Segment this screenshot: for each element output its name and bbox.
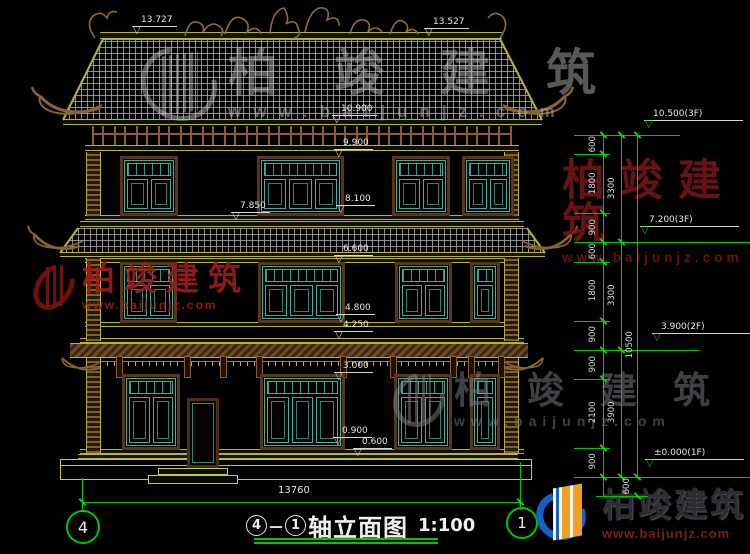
elevation-mark: 9.900▽ xyxy=(334,139,373,158)
elevation-triangle-icon: ▽ xyxy=(425,29,469,37)
dimension-text: 1800 xyxy=(589,277,598,303)
elevation-mark: ±0.000(1F)▽ xyxy=(645,449,744,468)
dimension-text: 10500 xyxy=(626,332,635,358)
elevation-triangle-icon: ▽ xyxy=(653,334,750,342)
dimension-line xyxy=(82,502,520,503)
dimension-line xyxy=(574,242,750,243)
dimension-line xyxy=(621,135,622,477)
dimension-text: 3900 xyxy=(608,399,617,425)
overall-width-dim: 13760 xyxy=(278,486,310,496)
title-axis-end-bubble: 1 xyxy=(285,515,306,536)
pent-roof-corner-right xyxy=(522,226,577,249)
dimension-text: 900 xyxy=(589,321,598,347)
elevation-mark: 4.250▽ xyxy=(334,321,373,340)
elevation-mark: 3.000▽ xyxy=(334,362,373,381)
main-roof-corner-left xyxy=(32,87,102,114)
dimension-text: 3300 xyxy=(608,282,617,308)
dimension-line xyxy=(574,477,750,478)
elevation-value: ±0.000(1F) xyxy=(645,449,744,460)
dimension-line xyxy=(82,478,83,510)
elevation-mark: 0.600▽ xyxy=(353,438,392,457)
axis-bubble-4: 4 xyxy=(66,510,100,544)
title-scale: 1:100 xyxy=(418,515,475,536)
elevation-mark: 7.200(3F)▽ xyxy=(640,216,739,235)
elevation-triangle-icon: ▽ xyxy=(645,121,743,129)
pent-roof-corner-left xyxy=(28,226,83,249)
elevation-mark: 13.727▽ xyxy=(132,16,177,35)
elevation-mark: 8.100▽ xyxy=(336,195,375,214)
elevation-mark: 10.900▽ xyxy=(332,105,377,124)
dimension-text: 600 xyxy=(589,131,598,157)
dimension-text: 900 xyxy=(589,214,598,240)
elevation-triangle-icon: ▽ xyxy=(646,460,744,468)
elevation-triangle-icon: ▽ xyxy=(232,213,270,221)
elevation-triangle-icon: ▽ xyxy=(641,227,739,235)
elevation-drawing-canvas: 13.727▽13.527▽10.900▽9.900▽8.100▽7.850▽6… xyxy=(0,0,750,554)
baijun-logo-color xyxy=(536,484,598,548)
dimension-text: 3300 xyxy=(608,175,617,201)
elevation-value: 10.500(3F) xyxy=(644,110,743,121)
main-roof-outline xyxy=(63,39,542,120)
axis-bubble-1-label: 1 xyxy=(517,514,527,532)
elevation-triangle-icon: ▽ xyxy=(335,332,373,340)
dimension-line xyxy=(637,135,638,477)
dimension-text: 900 xyxy=(589,351,598,377)
axis-bubble-4-label: 4 xyxy=(78,518,88,537)
dimension-line xyxy=(603,135,604,496)
elevation-triangle-icon: ▽ xyxy=(335,150,373,158)
dimension-text: 600 xyxy=(623,473,632,499)
elevation-mark: 7.850▽ xyxy=(231,202,270,221)
elevation-triangle-icon: ▽ xyxy=(335,373,373,381)
elevation-mark: 13.527▽ xyxy=(424,18,469,37)
porch-corner-left xyxy=(62,358,100,370)
elevation-mark: 6.600▽ xyxy=(334,245,373,264)
dimension-text: 13760 xyxy=(278,486,310,496)
elevation-triangle-icon: ▽ xyxy=(333,116,377,124)
pent-roof-outline xyxy=(60,228,545,253)
axis-bubble-1: 1 xyxy=(506,507,538,539)
elevation-value: 3.900(2F) xyxy=(652,323,750,334)
elevation-mark: 10.500(3F)▽ xyxy=(644,110,743,129)
dimension-text: 2100 xyxy=(589,399,598,425)
elevation-triangle-icon: ▽ xyxy=(335,256,373,264)
title-underline xyxy=(254,542,438,544)
elevation-mark: 3.900(2F)▽ xyxy=(652,323,750,342)
elevation-triangle-icon: ▽ xyxy=(354,449,392,457)
porch-corner-right xyxy=(505,358,543,370)
elevation-value: 7.200(3F) xyxy=(640,216,739,227)
elevation-triangle-icon: ▽ xyxy=(133,27,177,35)
dimension-text: 600 xyxy=(589,238,598,264)
main-roof-corner-right xyxy=(503,87,573,114)
elevation-triangle-icon: ▽ xyxy=(337,206,375,214)
dimension-text: 1800 xyxy=(589,170,598,196)
title-underline xyxy=(254,538,438,540)
title-dash: － xyxy=(268,514,284,538)
title-axis-start-bubble: 4 xyxy=(246,515,267,536)
dimension-text: 900 xyxy=(589,448,598,474)
